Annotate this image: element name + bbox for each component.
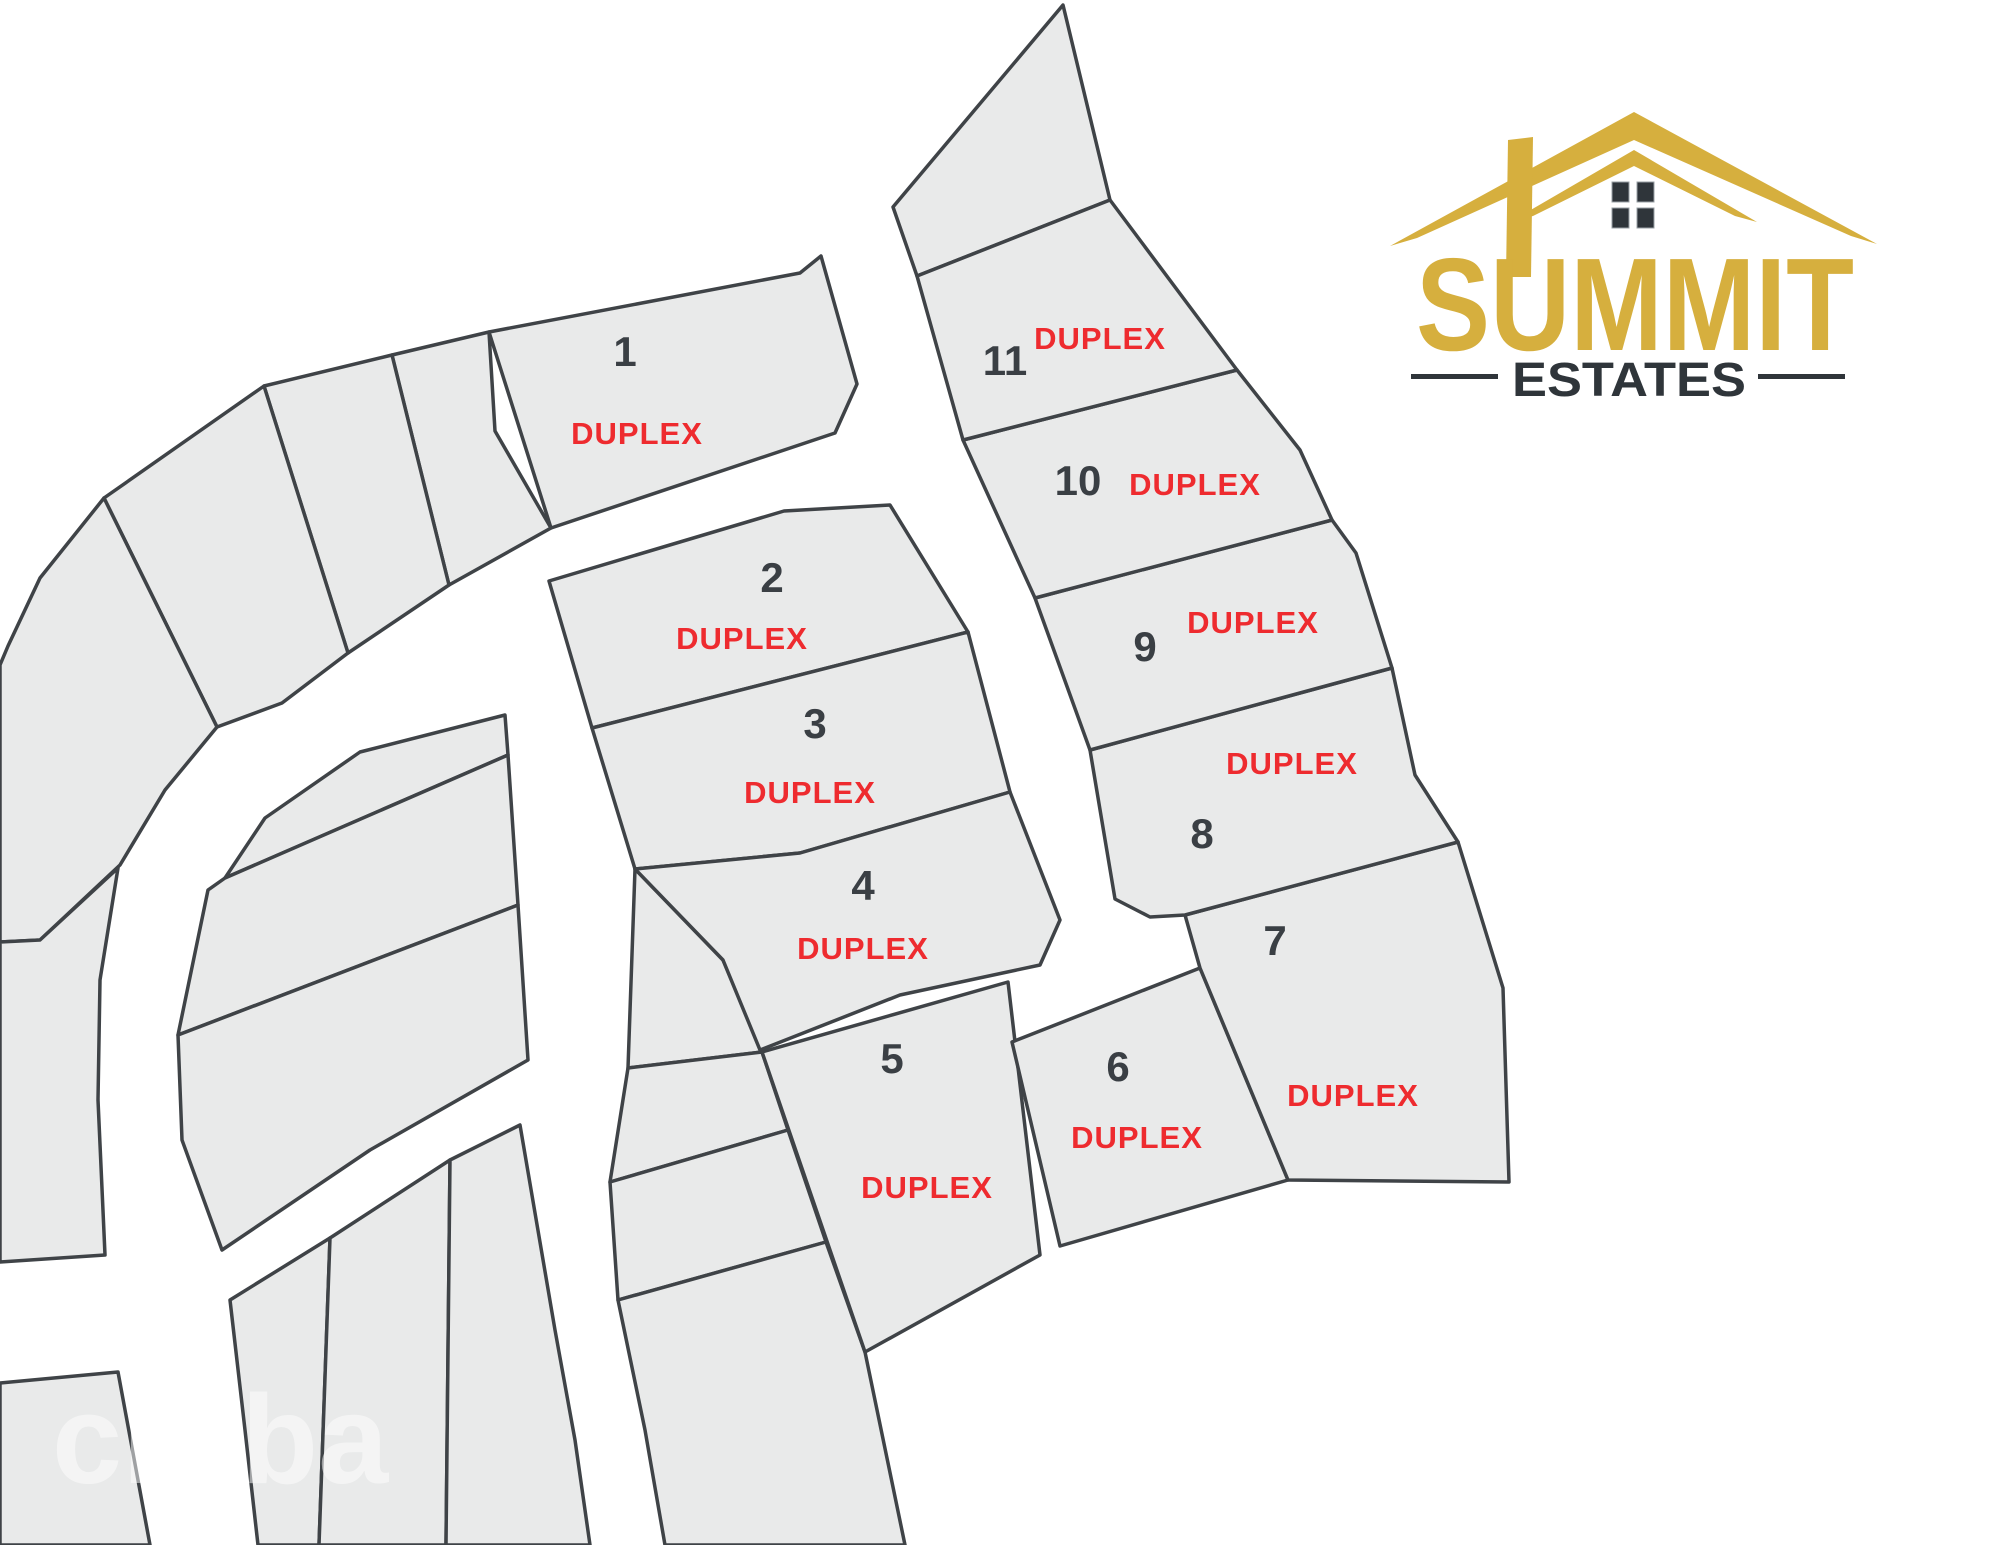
summit-estates-plat-map: 1DUPLEX2DUPLEX3DUPLEX4DUPLEX5DUPLEX6DUPL…	[0, 0, 2000, 1545]
lot-11-duplex-label: DUPLEX	[1034, 321, 1166, 356]
lot-6-duplex-label: DUPLEX	[1071, 1120, 1203, 1155]
lot-3-duplex-label: DUPLEX	[744, 775, 876, 810]
lot-8-duplex-label: DUPLEX	[1226, 746, 1358, 781]
lot-7-number: 7	[1263, 917, 1286, 964]
lot-1-number: 1	[613, 328, 636, 375]
lot-8-number: 8	[1190, 810, 1213, 857]
logo-subtitle: ESTATES	[1512, 354, 1746, 407]
parcel-cluster-c	[446, 1125, 590, 1545]
lot-1-polygon	[489, 256, 857, 528]
site-plan-image: 1DUPLEX2DUPLEX3DUPLEX4DUPLEX5DUPLEX6DUPL…	[0, 0, 2000, 1545]
lot-2-number: 2	[760, 554, 783, 601]
lot-6-number: 6	[1106, 1043, 1129, 1090]
lot-11-number: 11	[983, 337, 1027, 384]
lot-9-number: 9	[1133, 623, 1156, 670]
roof-icon	[1390, 112, 1877, 246]
creba-crown-icon	[59, 1288, 225, 1362]
summit-estates-logo: SUMMIT ESTATES	[1390, 112, 1877, 407]
creba-watermark-text: creba	[52, 1369, 389, 1510]
lot-1-duplex-label: DUPLEX	[571, 416, 703, 451]
lot-3-number: 3	[803, 700, 826, 747]
lot-5-duplex-label: DUPLEX	[861, 1170, 993, 1205]
lot-10-number: 10	[1055, 457, 1102, 504]
lot-2-duplex-label: DUPLEX	[676, 621, 808, 656]
window-icon	[1612, 182, 1654, 228]
logo-divider-left	[1411, 374, 1498, 379]
lot-7-duplex-label: DUPLEX	[1287, 1078, 1419, 1113]
lot-4-number: 4	[851, 862, 875, 909]
lot-5-number: 5	[880, 1035, 903, 1082]
logo-divider-right	[1758, 374, 1845, 379]
lot-4-duplex-label: DUPLEX	[797, 931, 929, 966]
lot-9-duplex-label: DUPLEX	[1187, 605, 1319, 640]
lot-10-duplex-label: DUPLEX	[1129, 467, 1261, 502]
